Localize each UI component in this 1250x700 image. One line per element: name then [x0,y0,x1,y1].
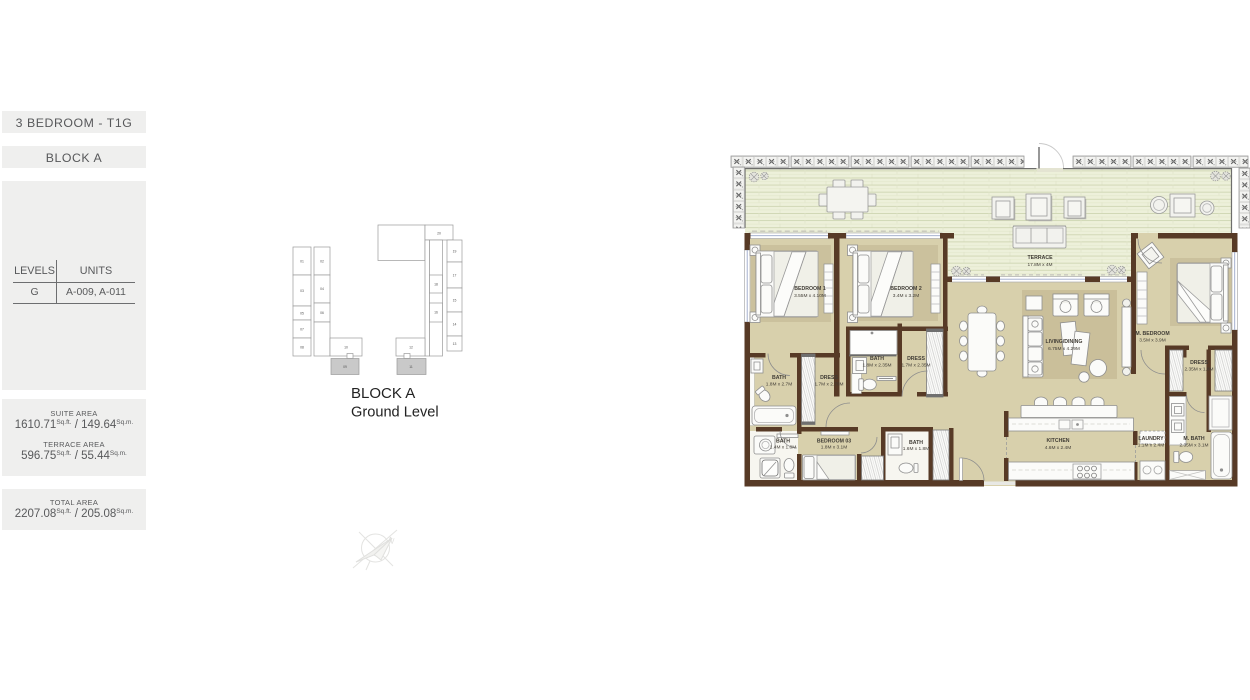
svg-text:1.7M x 2.35M: 1.7M x 2.35M [901,363,930,369]
svg-text:3.4M x 3.2M: 3.4M x 3.2M [893,293,919,299]
svg-text:M. BATH: M. BATH [1183,436,1204,442]
svg-text:08: 08 [300,346,304,350]
svg-text:06: 06 [320,311,324,315]
svg-text:02: 02 [320,260,324,264]
svg-text:M. BEDROOM: M. BEDROOM [1135,331,1169,337]
svg-text:04: 04 [320,287,324,291]
svg-text:05: 05 [300,312,304,316]
svg-text:13: 13 [453,342,457,346]
svg-text:20: 20 [437,232,441,236]
svg-text:BEDROOM 2: BEDROOM 2 [890,286,922,292]
svg-text:BATH: BATH [909,440,923,446]
svg-text:BATH: BATH [870,356,884,362]
svg-text:DRESS: DRESS [907,356,925,362]
svg-text:1.8M x 3.1M: 1.8M x 3.1M [821,445,847,451]
svg-text:TERRACE: TERRACE [1027,255,1053,261]
svg-text:10: 10 [344,346,348,350]
svg-text:1.1M x 2.4M: 1.1M x 2.4M [1138,443,1164,449]
svg-text:1.7M x 2.70M: 1.7M x 2.70M [814,382,843,388]
svg-text:03: 03 [300,289,304,293]
svg-text:19: 19 [453,250,457,254]
svg-text:BLOCK A: BLOCK A [351,385,415,402]
svg-text:3.5M x 3.9M: 3.5M x 3.9M [1139,338,1165,344]
svg-text:6.75M x 4.29M: 6.75M x 4.29M [1048,346,1080,352]
svg-text:1.6M x 1.8M: 1.6M x 1.8M [903,446,929,452]
svg-text:LAUNDRY: LAUNDRY [1138,436,1164,442]
svg-text:BEDROOM 03: BEDROOM 03 [817,439,851,445]
svg-text:09: 09 [343,365,347,369]
svg-text:1.8M x 2.7M: 1.8M x 2.7M [766,382,792,388]
svg-text:DRESS: DRESS [1190,360,1208,366]
svg-text:2.35M x 3.1M: 2.35M x 3.1M [1179,443,1208,449]
svg-text:KITCHEN: KITCHEN [1046,438,1069,444]
svg-text:01: 01 [300,260,304,264]
svg-text:LIVING/DINING: LIVING/DINING [1046,339,1083,345]
svg-text:14: 14 [453,323,457,327]
svg-text:Ground Level: Ground Level [351,405,439,421]
svg-text:18: 18 [434,283,438,287]
svg-text:12: 12 [409,346,413,350]
svg-text:15: 15 [453,299,457,303]
svg-text:3.55M x 4.10M: 3.55M x 4.10M [794,293,826,299]
svg-text:2.35M x 1.8M: 2.35M x 1.8M [1184,367,1213,373]
svg-text:17.8M x 4M: 17.8M x 4M [1027,262,1052,268]
svg-text:4.6M x 2.4M: 4.6M x 2.4M [1045,445,1071,451]
svg-text:16: 16 [434,311,438,315]
svg-text:BATH: BATH [776,439,790,445]
svg-text:BEDROOM 1: BEDROOM 1 [794,286,826,292]
svg-text:BATH: BATH [772,375,786,381]
svg-text:1.4M x 1.8M: 1.4M x 1.8M [770,445,796,451]
svg-text:07: 07 [300,328,304,332]
svg-text:N: N [387,534,396,545]
svg-text:17: 17 [453,274,457,278]
svg-text:11: 11 [409,365,413,369]
svg-text:1.8M x 2.35M: 1.8M x 2.35M [862,363,891,369]
svg-text:DRESS: DRESS [820,375,838,381]
